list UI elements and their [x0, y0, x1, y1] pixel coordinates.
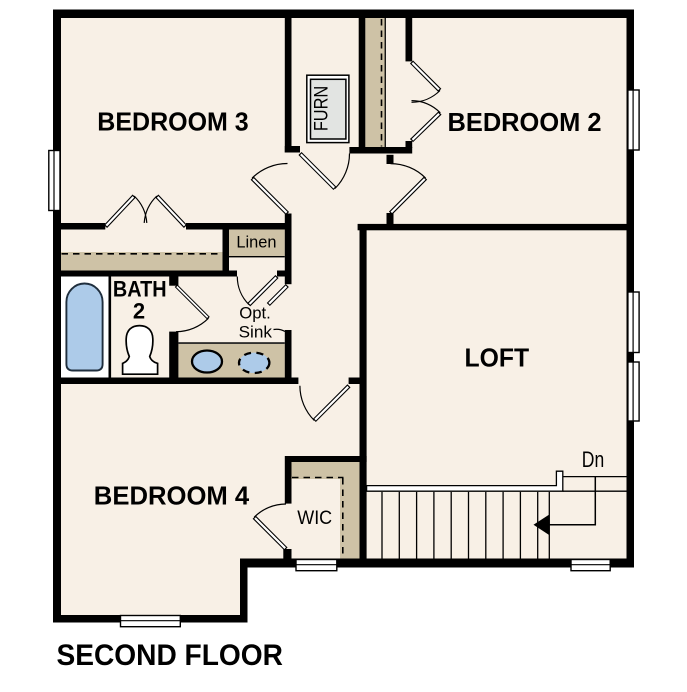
- svg-text:WIC: WIC: [297, 508, 332, 529]
- svg-text:FURN: FURN: [312, 86, 333, 131]
- svg-text:Opt.: Opt.: [239, 303, 271, 322]
- svg-text:BEDROOM 4: BEDROOM 4: [94, 481, 250, 511]
- svg-text:BEDROOM 2: BEDROOM 2: [448, 107, 602, 137]
- svg-text:Sink: Sink: [239, 323, 273, 342]
- svg-text:Linen: Linen: [236, 233, 276, 252]
- svg-text:Dn: Dn: [582, 447, 604, 472]
- svg-text:SECOND FLOOR: SECOND FLOOR: [57, 639, 284, 672]
- svg-text:BEDROOM 3: BEDROOM 3: [97, 107, 248, 137]
- svg-text:LOFT: LOFT: [465, 343, 530, 373]
- svg-text:2: 2: [133, 299, 145, 324]
